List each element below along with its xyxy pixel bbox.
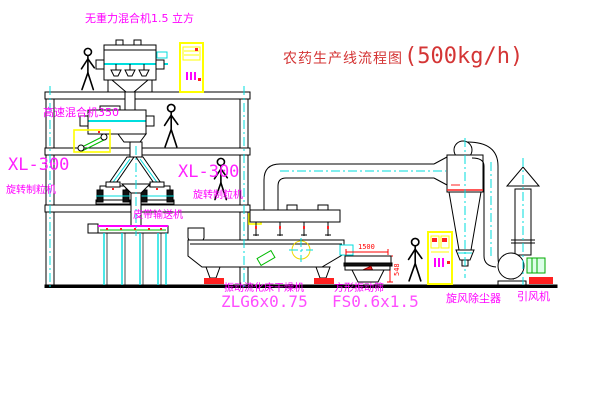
- fan-motor-icon: [527, 258, 545, 273]
- belt-conveyor: [88, 224, 168, 285]
- label-granulator-center-model: XL-300: [178, 164, 239, 181]
- gravity-free-mixer: [96, 40, 168, 112]
- control-cabinet-top: [180, 43, 203, 92]
- label-granulator-center-name: 旋转制粒机: [193, 191, 243, 201]
- cabinet-display-icon: [186, 72, 196, 80]
- indicator-light-icon: [195, 48, 198, 51]
- dimension-548: 548: [394, 263, 401, 276]
- person-icon: [165, 104, 178, 146]
- label-induced-fan: 引风机: [517, 291, 550, 302]
- cabinet-display-icon: [434, 258, 444, 267]
- label-cyclone-duster: 旋风除尘器: [446, 293, 501, 304]
- label-high-speed-mixer: 高速混合机350: [43, 107, 119, 118]
- induced-draft-fan: [498, 167, 553, 285]
- label-belt-conveyor: 皮带输送机: [133, 211, 183, 221]
- fan-scroll-icon: [498, 253, 524, 279]
- label-granulator-left-name: 旋转制粒机: [6, 186, 56, 196]
- title-text: 农药生产线流程图: [283, 48, 403, 68]
- label-granulator-left-model: XL-300: [8, 157, 69, 174]
- drawing-title: 农药生产线流程图 (500kg/h): [283, 44, 523, 69]
- control-cabinet-ground: [428, 232, 452, 284]
- person-icon: [81, 48, 94, 89]
- title-capacity: (500kg/h): [404, 44, 523, 69]
- spring-mounts: [253, 222, 331, 236]
- person-icon: [409, 238, 422, 280]
- label-dryer-model: ZLG6x0.75: [221, 294, 308, 310]
- fluid-bed-dryer: [188, 205, 344, 284]
- process-flow-drawing: 农药生产线流程图 (500kg/h) 无重力混合机1.5 立方 高速混合机350…: [0, 0, 600, 403]
- label-sieve-model: FS0.6x1.5: [332, 294, 419, 310]
- dimension-1500: 1500: [358, 244, 375, 251]
- exhaust-duct: [264, 157, 447, 210]
- label-gravity-mixer: 无重力混合机1.5 立方: [85, 13, 194, 24]
